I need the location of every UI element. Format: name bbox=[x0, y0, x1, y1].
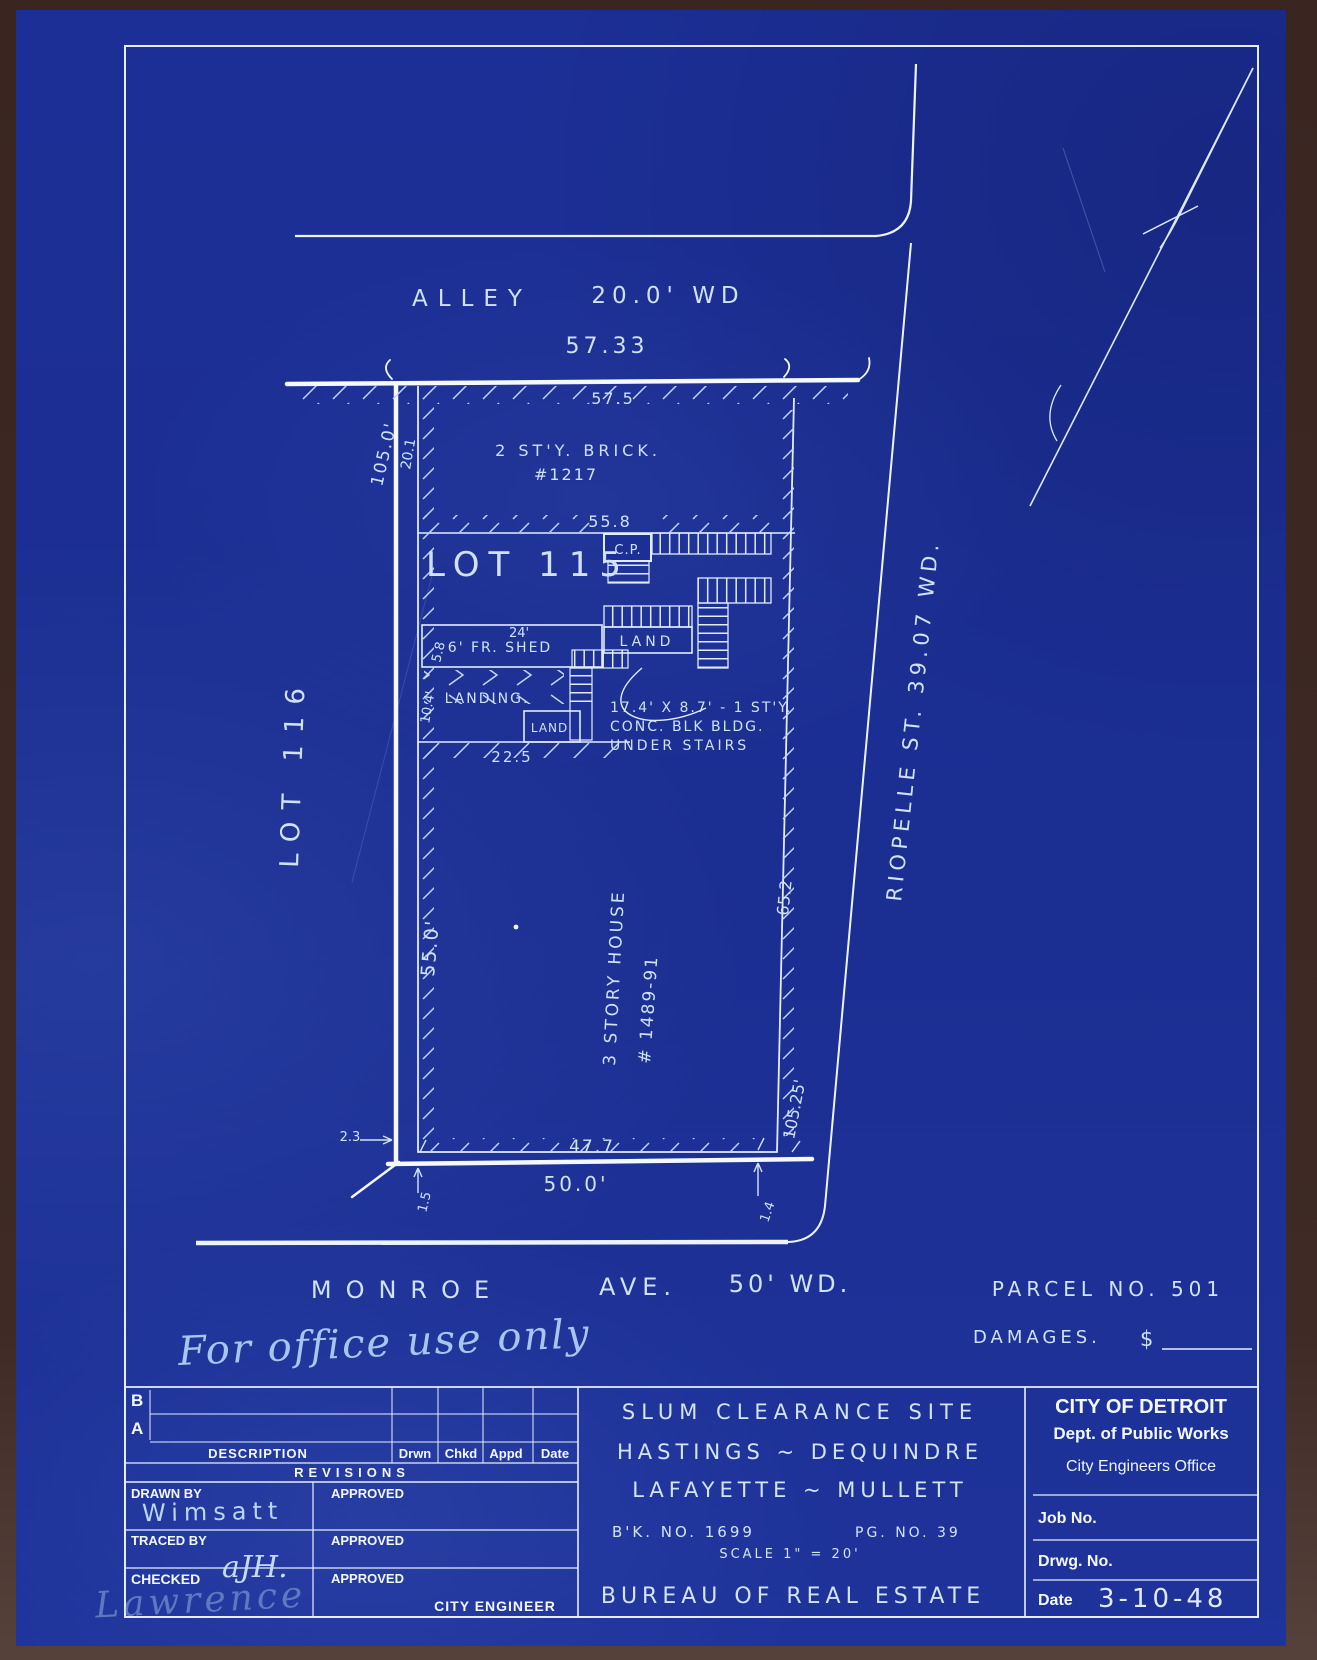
job-no-label: Job No. bbox=[1038, 1510, 1097, 1528]
lot116-label: LOT 116 bbox=[275, 676, 312, 869]
brick-building-label: 2 ST'Y. BRICK. bbox=[495, 441, 661, 460]
blueprint-page: { "drawing": { "alley": {"name": "ALLEY"… bbox=[0, 0, 1317, 1660]
stair-small-h bbox=[572, 650, 628, 668]
stair-note-line2: CONC. BLK BLDG. bbox=[610, 719, 764, 735]
col-drwn: Drwn bbox=[393, 1446, 437, 1461]
dim-shed-top: 24' bbox=[509, 626, 529, 641]
alley-label: ALLEY bbox=[412, 286, 532, 312]
stair-run-land bbox=[604, 606, 692, 627]
col-date: Date bbox=[532, 1446, 578, 1461]
dim-left-top: 20.1 bbox=[398, 437, 419, 470]
stair-run-mid-h bbox=[698, 578, 771, 603]
dim-sw-small: 1.5 bbox=[415, 1190, 435, 1214]
damages-label: DAMAGES. bbox=[973, 1327, 1101, 1348]
survey-dot bbox=[514, 925, 519, 930]
dim-se-small: 1.4 bbox=[758, 1200, 779, 1224]
monroe-width-label: 50' WD. bbox=[729, 1270, 852, 1298]
drawn-by-value: Wimsatt bbox=[142, 1497, 284, 1527]
agency-name: CITY OF DETROIT bbox=[1030, 1396, 1252, 1419]
dim-west: 55.0' bbox=[417, 918, 444, 977]
agency-office: City Engineers Office bbox=[1030, 1458, 1252, 1476]
project-title-line1: SLUM CLEARANCE SITE bbox=[590, 1400, 1010, 1424]
dim-bottom-outer: 50.0' bbox=[543, 1172, 608, 1196]
book-number: B'K. NO. 1699 bbox=[612, 1523, 755, 1541]
stair-note-line1: 17.4' X 8.7' - 1 ST'Y. bbox=[610, 700, 792, 716]
parcel-number-label: PARCEL NO. 501 bbox=[992, 1277, 1224, 1301]
dim-top-outer: 57.33 bbox=[566, 334, 649, 359]
alley-line bbox=[295, 64, 916, 236]
date-value: 3-10-48 bbox=[1098, 1584, 1227, 1614]
approved-label-2: APPROVED bbox=[331, 1533, 404, 1548]
agency-dept: Dept. of Public Works bbox=[1030, 1424, 1252, 1444]
stair-run-top bbox=[652, 533, 771, 554]
approved-label-3: APPROVED bbox=[331, 1571, 404, 1586]
traced-by-label: TRACED BY bbox=[131, 1533, 207, 1548]
riopelle-label: RIOPELLE ST. 39.07 WD. bbox=[882, 538, 944, 903]
monroe-ave-label: AVE. bbox=[599, 1273, 677, 1301]
brick-building-number: #1217 bbox=[534, 465, 598, 484]
dim-sw-offset: 2.3 bbox=[340, 1130, 361, 1145]
city-engineer-label: CITY ENGINEER bbox=[420, 1598, 570, 1614]
approved-label-1: APPROVED bbox=[331, 1486, 404, 1501]
project-title-line3: LAFAYETTE ~ MULLETT bbox=[590, 1478, 1010, 1502]
revision-row-b: B bbox=[131, 1391, 143, 1411]
revision-row-a: A bbox=[131, 1419, 143, 1439]
street-lines bbox=[196, 64, 916, 1243]
dim-mid-width: 55.8 bbox=[588, 512, 632, 531]
hatching bbox=[300, 386, 848, 1152]
drwg-no-label: Drwg. No. bbox=[1038, 1553, 1113, 1571]
alley-width-label: 20.0' WD bbox=[591, 283, 744, 309]
stair-note-line3: UNDER STAIRS bbox=[610, 738, 749, 754]
monroe-label: MONROE bbox=[311, 1276, 503, 1304]
dim-top-inner: 57.5 bbox=[591, 389, 635, 408]
bureau-label: BUREAU OF REAL ESTATE bbox=[578, 1584, 1008, 1609]
stair-run-mid-v bbox=[698, 603, 728, 668]
date-label: Date bbox=[1038, 1592, 1073, 1610]
scale-note: SCALE 1" = 20' bbox=[640, 1547, 940, 1562]
lot115-label: LOT 115 bbox=[426, 545, 630, 585]
land-label: LAND bbox=[620, 634, 675, 650]
revisions-title: REVISIONS bbox=[267, 1465, 437, 1480]
description-header: DESCRIPTION bbox=[178, 1446, 338, 1461]
project-title-line2: HASTINGS ~ DEQUINDRE bbox=[590, 1440, 1010, 1464]
monroe-line bbox=[196, 1242, 788, 1243]
shed-label: 6' FR. SHED bbox=[448, 640, 552, 656]
house-number: # 1489-91 bbox=[635, 955, 663, 1065]
col-chkd: Chkd bbox=[439, 1446, 483, 1461]
col-appd: Appd bbox=[484, 1446, 528, 1461]
dim-landing-bottom: 22.5 bbox=[491, 748, 532, 766]
page-number: PG. NO. 39 bbox=[855, 1525, 961, 1541]
landing-label: LANDING. bbox=[445, 691, 530, 707]
damages-dollar-sign: $ bbox=[1140, 1327, 1153, 1351]
house-label: 3 STORY HOUSE bbox=[600, 889, 629, 1066]
dim-bottom-inner: 47.7 bbox=[569, 1137, 615, 1157]
north-arrow bbox=[1030, 68, 1253, 506]
dim-east: 65.2 bbox=[773, 879, 796, 916]
land-small-label: LAND. bbox=[531, 721, 573, 735]
